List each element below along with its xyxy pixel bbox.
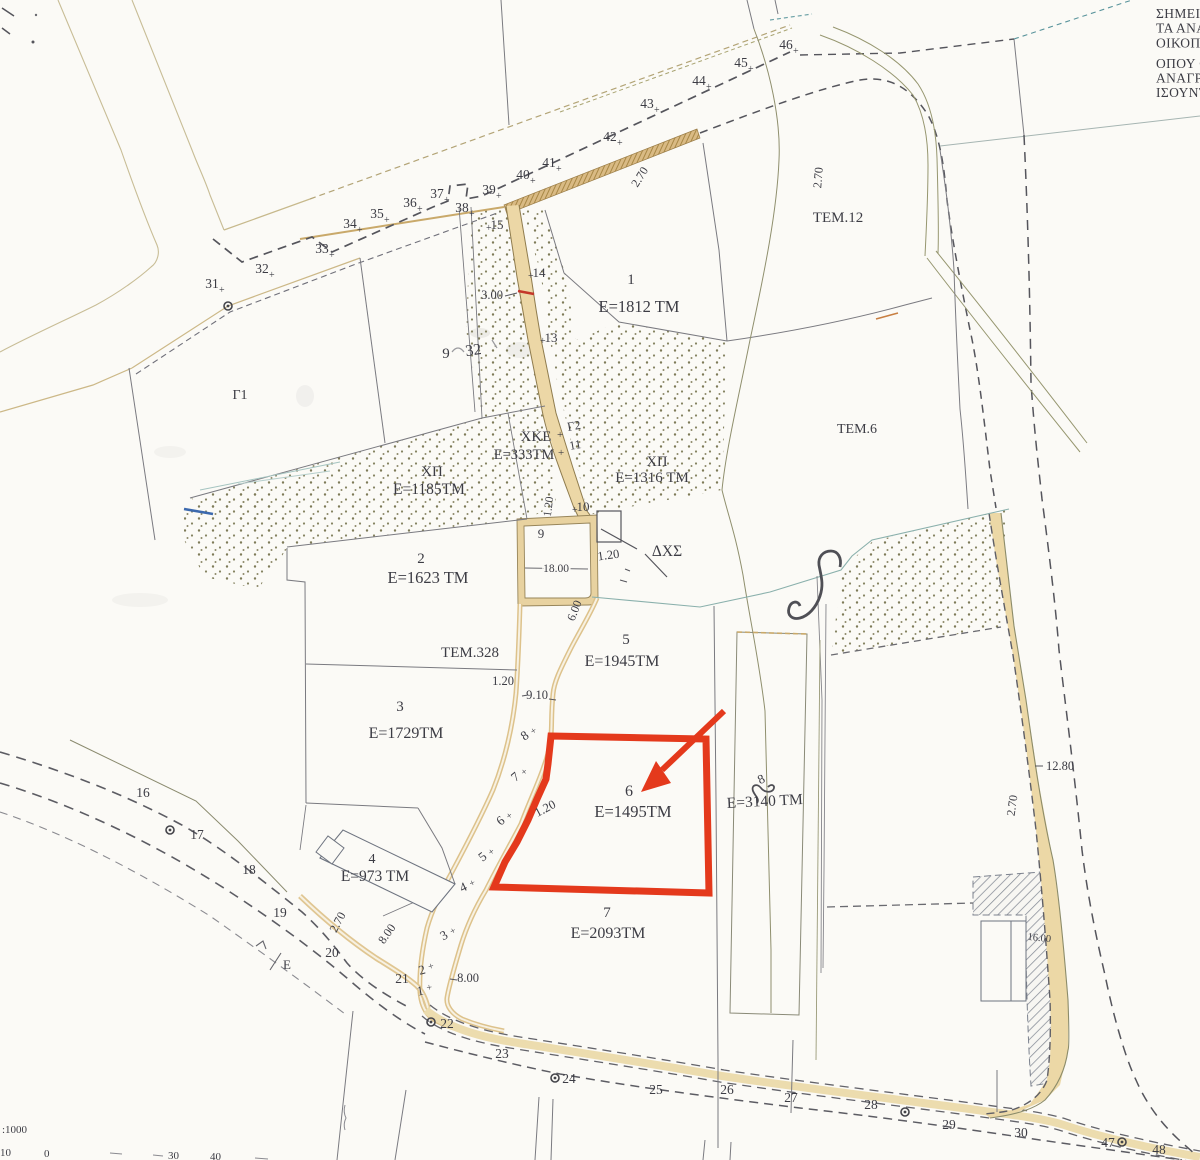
svg-text:ΟΠΟΥ ΟΙ: ΟΠΟΥ ΟΙ [1156, 56, 1200, 71]
svg-text:+: + [793, 46, 799, 57]
svg-text:Ε=1495ΤΜ: Ε=1495ΤΜ [594, 802, 671, 821]
svg-text:ΤΕΜ.12: ΤΕΜ.12 [813, 210, 863, 226]
svg-text:+: + [329, 250, 335, 261]
svg-text:15: 15 [491, 217, 504, 232]
svg-text:+: + [617, 138, 623, 149]
svg-text:25: 25 [649, 1082, 663, 1097]
svg-text:22: 22 [440, 1016, 454, 1031]
svg-text:+: + [530, 176, 536, 187]
svg-text:2: 2 [417, 551, 425, 567]
svg-text:21: 21 [395, 971, 409, 986]
svg-text:37: 37 [430, 186, 444, 201]
svg-text:ΙΣΟΥΝΤΑΙ: ΙΣΟΥΝΤΑΙ [1156, 85, 1200, 100]
svg-text:+: + [496, 191, 502, 202]
svg-text:Ε=1623 ΤΜ: Ε=1623 ΤΜ [388, 568, 469, 587]
svg-text:42: 42 [603, 129, 617, 144]
svg-text:+: + [540, 336, 546, 347]
svg-text:34: 34 [343, 216, 357, 231]
svg-text:14: 14 [533, 265, 547, 280]
svg-text:+: + [572, 505, 578, 516]
svg-text:23: 23 [495, 1046, 509, 1061]
svg-text:6: 6 [625, 783, 633, 800]
svg-text:ΧΠ: ΧΠ [421, 464, 443, 480]
svg-text:Ε=1316 ΤΜ: Ε=1316 ΤΜ [615, 470, 689, 486]
svg-text:40: 40 [516, 167, 530, 182]
svg-text:ΧΚΕ: ΧΚΕ [521, 429, 552, 445]
svg-text:+: + [486, 223, 492, 234]
svg-text:3.00: 3.00 [481, 288, 503, 302]
svg-text:+: + [384, 215, 390, 226]
svg-text:32: 32 [464, 341, 482, 360]
svg-text:27: 27 [784, 1090, 798, 1105]
svg-text:1.20: 1.20 [492, 674, 514, 688]
svg-text:18.00: 18.00 [543, 563, 569, 575]
svg-text:ΤΑ ΑΝΑΓ: ΤΑ ΑΝΑΓ [1156, 21, 1200, 36]
svg-text:+: + [558, 447, 564, 459]
svg-text:26: 26 [720, 1082, 734, 1097]
svg-text:ΧΠ: ΧΠ [647, 454, 668, 470]
svg-text:+: + [444, 195, 450, 206]
svg-text:30: 30 [1014, 1125, 1028, 1140]
svg-text:30: 30 [168, 1150, 180, 1160]
svg-text::1000: :1000 [2, 1124, 28, 1136]
svg-text:+: + [469, 209, 475, 220]
svg-text:10: 10 [0, 1147, 12, 1159]
svg-text:+: + [748, 64, 754, 75]
svg-text:Ε=1812 ΤΜ: Ε=1812 ΤΜ [599, 297, 680, 316]
svg-text:ΟΙΚΟΠΕΔ: ΟΙΚΟΠΕΔ [1156, 36, 1200, 51]
svg-text:20: 20 [325, 945, 339, 960]
svg-text:Ε=973 ΤΜ: Ε=973 ΤΜ [341, 868, 410, 885]
svg-text:3: 3 [396, 699, 404, 715]
svg-text:32: 32 [255, 261, 269, 276]
svg-text:31: 31 [205, 276, 219, 291]
svg-text:Ε: Ε [283, 957, 291, 972]
svg-text:Ε=2093ΤΜ: Ε=2093ΤΜ [571, 925, 646, 942]
svg-text:Ε=333ΤΜ: Ε=333ΤΜ [494, 447, 555, 463]
svg-text:48: 48 [1152, 1142, 1166, 1157]
svg-text:+: + [219, 285, 225, 296]
svg-text:Γ1: Γ1 [232, 388, 247, 403]
svg-text:9.10: 9.10 [526, 688, 548, 702]
svg-text:9: 9 [538, 526, 545, 541]
svg-text:41: 41 [542, 155, 556, 170]
svg-text:7: 7 [603, 905, 611, 921]
svg-text:+: + [557, 429, 563, 441]
svg-text:9: 9 [442, 346, 450, 362]
svg-text:11: 11 [568, 437, 582, 453]
svg-text:38: 38 [455, 200, 469, 215]
svg-text:13: 13 [545, 330, 558, 345]
svg-text:17: 17 [190, 827, 204, 842]
svg-text:Ε=1185ΤΜ: Ε=1185ΤΜ [393, 481, 465, 498]
svg-text:5: 5 [622, 632, 630, 648]
svg-text:ΣΗΜΕΙΩΣ: ΣΗΜΕΙΩΣ [1156, 6, 1200, 21]
svg-text:+: + [556, 164, 562, 175]
svg-text:16: 16 [136, 785, 150, 800]
svg-text:Ε=1945ΤΜ: Ε=1945ΤΜ [585, 653, 660, 670]
svg-text:+: + [269, 270, 275, 281]
svg-text:46: 46 [779, 37, 793, 52]
svg-text:10: 10 [577, 499, 590, 514]
svg-text:Ε=1729ΤΜ: Ε=1729ΤΜ [369, 725, 444, 742]
svg-text:43: 43 [640, 96, 654, 111]
svg-text:1.20: 1.20 [542, 496, 556, 518]
svg-text:18: 18 [242, 862, 256, 877]
svg-text:0: 0 [44, 1148, 50, 1160]
svg-text:+: + [528, 271, 534, 282]
svg-text:+: + [417, 204, 423, 215]
svg-text:24: 24 [562, 1071, 576, 1086]
svg-text:8.00: 8.00 [457, 971, 479, 985]
svg-text:4: 4 [369, 852, 376, 867]
svg-text:2.70: 2.70 [1004, 794, 1021, 817]
svg-text:ΔΧΣ: ΔΧΣ [652, 543, 682, 560]
svg-text:44: 44 [692, 73, 706, 88]
svg-text:Γ2: Γ2 [566, 418, 582, 434]
svg-text:40: 40 [210, 1151, 222, 1160]
svg-text:29: 29 [942, 1117, 956, 1132]
svg-text:19: 19 [273, 905, 287, 920]
svg-text:28: 28 [864, 1097, 878, 1112]
svg-text:36: 36 [403, 195, 417, 210]
svg-text:ΑΝΑΓΡΑΦ: ΑΝΑΓΡΑΦ [1156, 71, 1200, 86]
svg-text:39: 39 [482, 182, 496, 197]
svg-text:12.80: 12.80 [1046, 759, 1074, 773]
svg-text:35: 35 [370, 206, 384, 221]
svg-text:1: 1 [627, 272, 635, 288]
svg-text:45: 45 [734, 55, 748, 70]
svg-text:ΤΕΜ.328: ΤΕΜ.328 [441, 645, 499, 661]
svg-text:33: 33 [315, 241, 329, 256]
svg-text:2.70: 2.70 [810, 167, 826, 189]
svg-text:ΤΕΜ.6: ΤΕΜ.6 [837, 422, 877, 437]
svg-text:+: + [357, 225, 363, 236]
svg-text:+: + [654, 105, 660, 116]
svg-text:47: 47 [1101, 1135, 1115, 1150]
svg-text:+: + [706, 82, 712, 93]
